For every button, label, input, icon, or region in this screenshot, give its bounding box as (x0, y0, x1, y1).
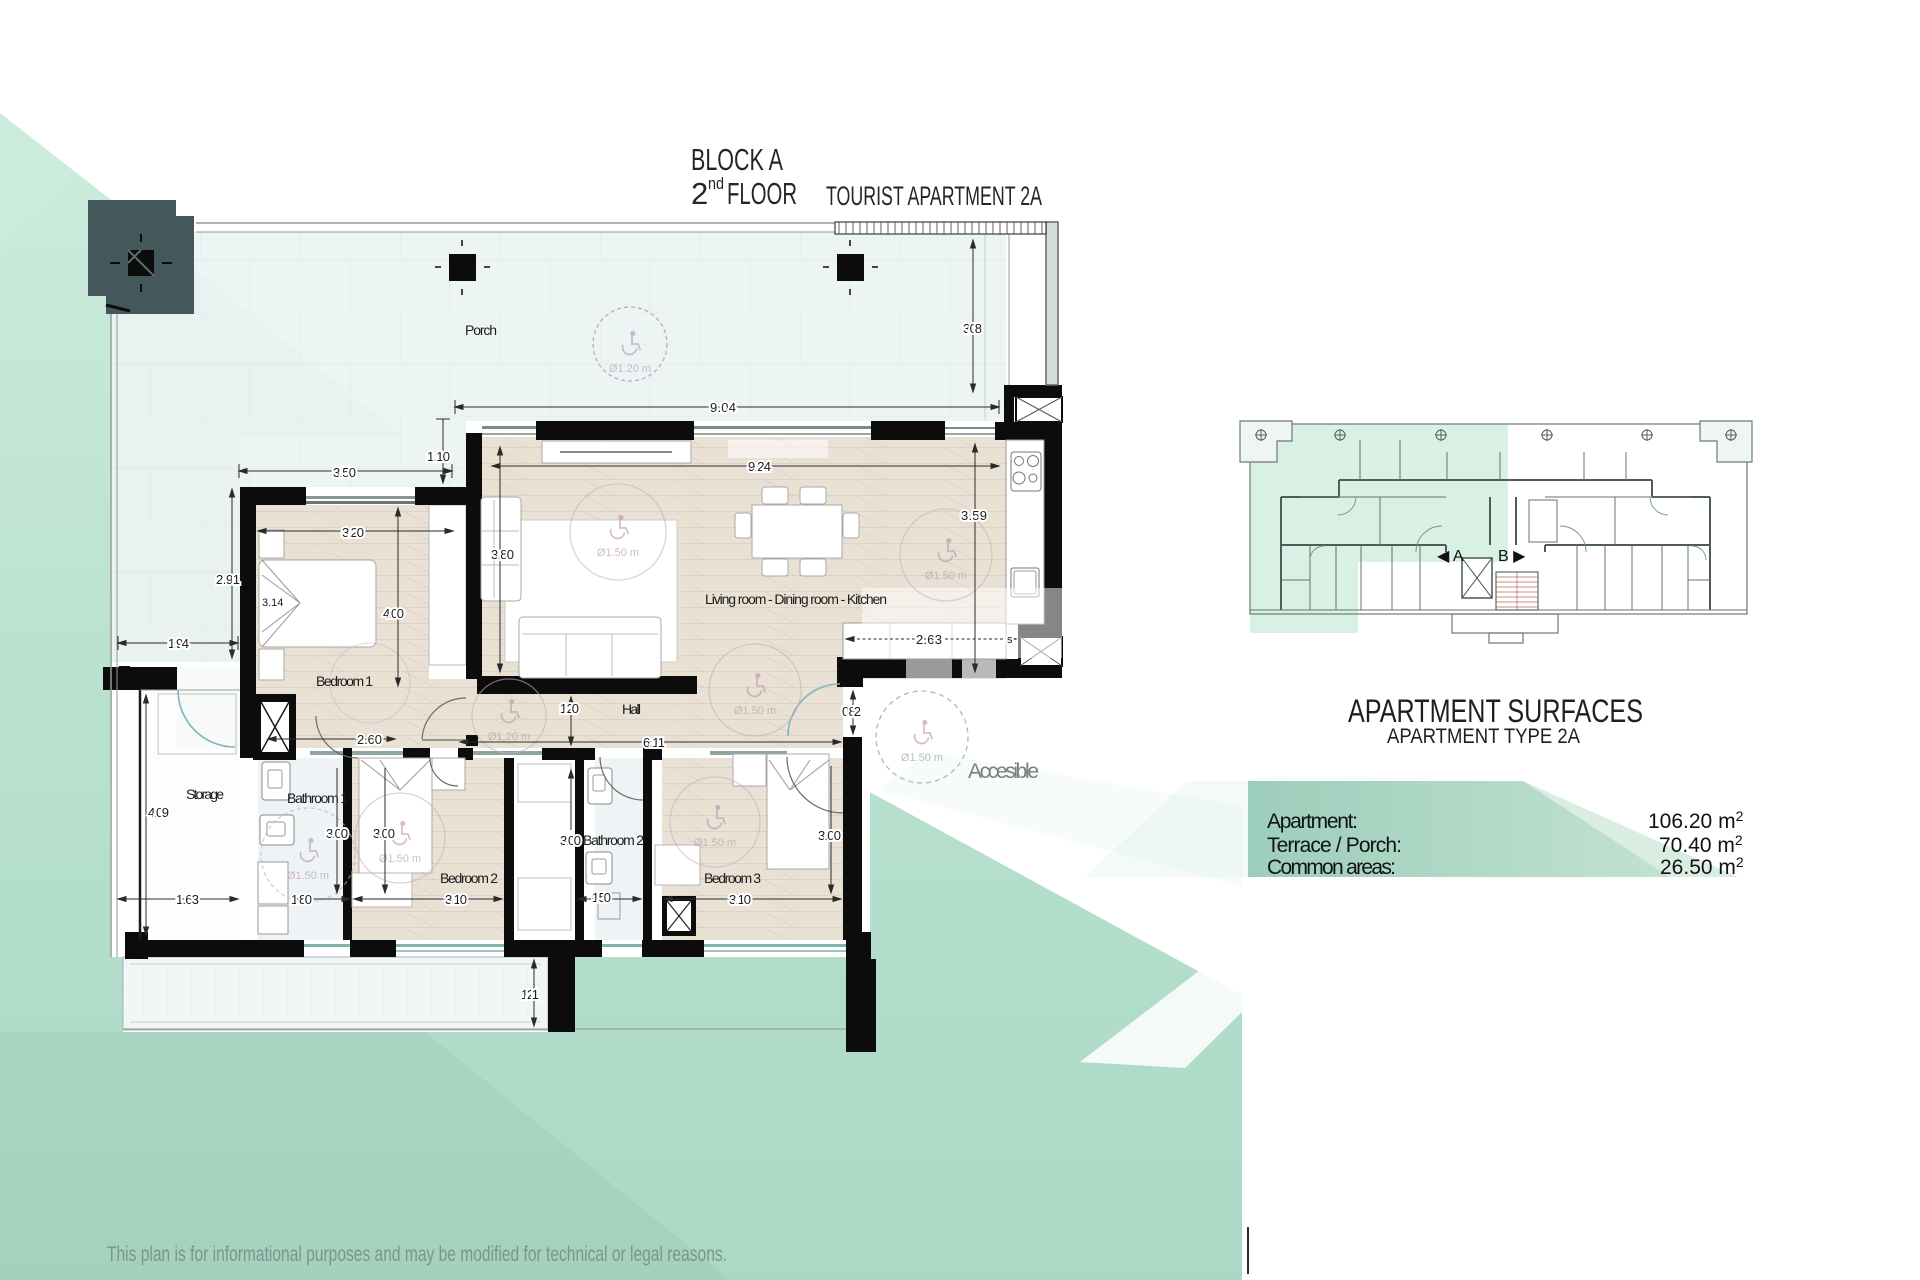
svg-text:This plan is for informational: This plan is for informational purposes … (107, 1243, 727, 1266)
svg-text:Porch: Porch (465, 322, 497, 338)
svg-text:3.80: 3.80 (491, 547, 514, 562)
svg-text:1.80: 1.80 (291, 892, 312, 907)
svg-text:Apartment:: Apartment: (1267, 810, 1358, 833)
svg-text:nd: nd (708, 174, 724, 193)
svg-text:3.20: 3.20 (342, 525, 364, 540)
svg-text:3.59: 3.59 (961, 508, 987, 523)
svg-text:◀ A: ◀ A (1437, 548, 1464, 565)
svg-text:106.20 m2: 106.20 m2 (1648, 808, 1744, 833)
svg-text:3.00: 3.00 (818, 828, 841, 843)
svg-text:Ø1.50 m: Ø1.50 m (597, 547, 639, 559)
svg-text:Ø1.50 m: Ø1.50 m (925, 570, 967, 582)
svg-text:2: 2 (691, 176, 708, 211)
svg-text:Storage: Storage (186, 786, 224, 802)
svg-text:Living room - Dining room - Ki: Living room - Dining room - Kitchen (705, 591, 887, 607)
svg-text:3.00: 3.00 (326, 826, 348, 841)
svg-text:Bathroom 2: Bathroom 2 (583, 832, 644, 848)
svg-text:Hall: Hall (622, 701, 641, 717)
svg-text:2.91: 2.91 (216, 572, 240, 587)
svg-text:3.50: 3.50 (333, 465, 356, 480)
svg-text:B ▶: B ▶ (1498, 548, 1526, 565)
svg-text:6.11: 6.11 (643, 735, 665, 750)
svg-text:TOURIST APARTMENT 2A: TOURIST APARTMENT 2A (826, 181, 1042, 211)
svg-text:Accesible: Accesible (968, 760, 1039, 783)
svg-text:3.08: 3.08 (963, 321, 982, 336)
svg-text:BLOCK A: BLOCK A (691, 142, 783, 177)
svg-text:2.63: 2.63 (916, 632, 942, 647)
svg-text:Ø1.50 m: Ø1.50 m (734, 705, 776, 717)
svg-text:Ø1.50 m: Ø1.50 m (901, 752, 943, 764)
svg-text:3.10: 3.10 (729, 892, 751, 907)
svg-text:Ø1.20 m: Ø1.20 m (609, 363, 651, 375)
svg-text:1.10: 1.10 (427, 449, 450, 464)
svg-text:APARTMENT SURFACES: APARTMENT SURFACES (1348, 693, 1643, 729)
svg-text:0.82: 0.82 (842, 704, 861, 719)
svg-text:2.60: 2.60 (357, 732, 382, 747)
svg-text:Ø1.50 m: Ø1.50 m (694, 837, 736, 849)
svg-text:s: s (1007, 634, 1013, 646)
svg-text:1.63: 1.63 (176, 892, 199, 907)
svg-text:FLOOR: FLOOR (727, 176, 797, 211)
svg-text:Bedroom 3: Bedroom 3 (704, 870, 761, 886)
svg-text:9.04: 9.04 (710, 400, 736, 415)
svg-text:Bedroom 1: Bedroom 1 (316, 673, 373, 689)
svg-text:3.00: 3.00 (560, 833, 581, 848)
svg-text:3.00: 3.00 (373, 826, 395, 841)
svg-text:3.10: 3.10 (445, 892, 467, 907)
svg-text:3.14: 3.14 (262, 597, 283, 609)
svg-text:Terrace / Porch:: Terrace / Porch: (1267, 834, 1402, 857)
svg-text:Ø1.20 m: Ø1.20 m (488, 731, 530, 743)
svg-text:Bedroom 2: Bedroom 2 (440, 870, 498, 886)
svg-text:Ø1.50 m: Ø1.50 m (287, 870, 329, 882)
svg-text:1.94: 1.94 (168, 636, 189, 651)
svg-text:26.50 m2: 26.50 m2 (1660, 854, 1744, 879)
svg-text:9.24: 9.24 (748, 459, 771, 474)
svg-text:1.50: 1.50 (592, 890, 611, 905)
svg-text:Bathroom 1: Bathroom 1 (287, 790, 348, 806)
svg-text:1.21: 1.21 (521, 987, 539, 1002)
svg-text:1.20: 1.20 (560, 701, 579, 716)
svg-text:APARTMENT TYPE 2A: APARTMENT TYPE 2A (1387, 725, 1580, 748)
svg-text:70.40 m2: 70.40 m2 (1659, 832, 1743, 857)
svg-text:4.00: 4.00 (383, 606, 404, 621)
svg-text:4.09: 4.09 (148, 805, 169, 820)
svg-text:Common areas:: Common areas: (1267, 856, 1396, 879)
